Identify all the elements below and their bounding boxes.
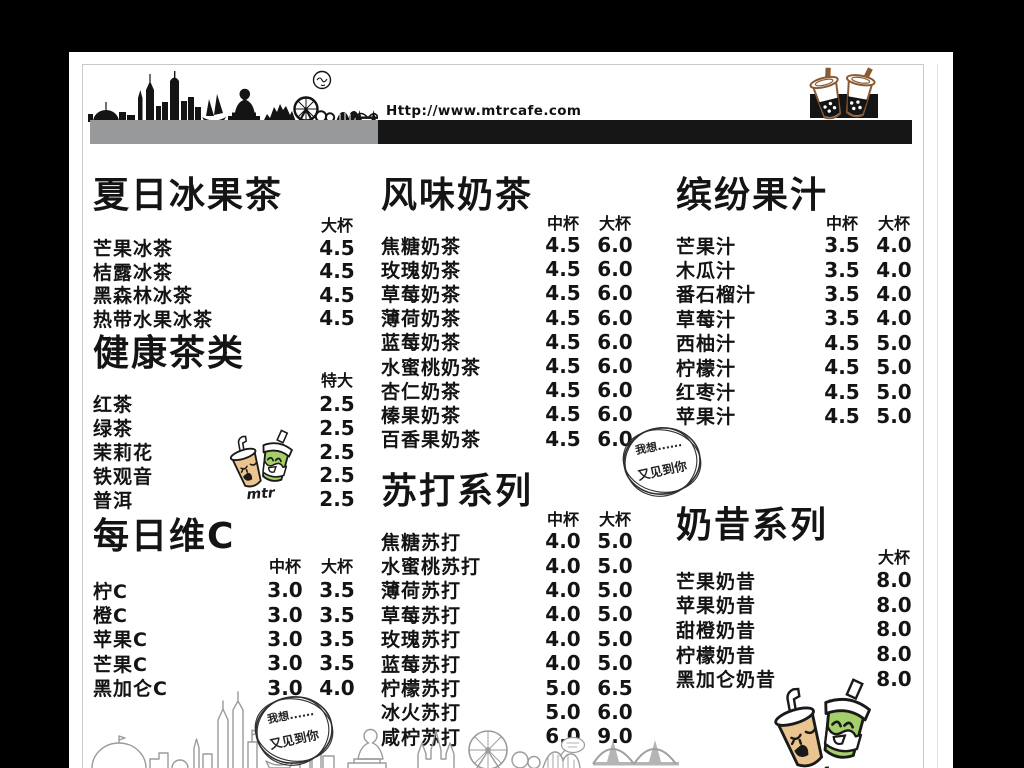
item-price-large: 3.5: [311, 627, 363, 651]
item-name: 红枣汁: [676, 378, 816, 405]
site-url: Http://www.mtrcafe.com: [386, 103, 581, 119]
menu-item-row: 芒果汁 3.5 4.0: [676, 233, 920, 257]
item-name: 番石榴汁: [676, 280, 816, 307]
menu-item-row: 玫瑰奶茶 4.5 6.0: [381, 257, 641, 281]
size-header-extra-large: 特大: [311, 372, 363, 390]
item-price-medium: 3.5: [816, 306, 868, 330]
item-price-medium: 4.0: [537, 651, 589, 675]
size-header-large: 大杯: [589, 511, 641, 529]
section-title-soda-series: 苏打系列: [381, 472, 533, 511]
size-header-row: 中杯 大杯: [93, 558, 363, 576]
item-name: 西柚汁: [676, 329, 816, 356]
item-name: 苹果奶昔: [676, 591, 868, 618]
item-price-large: 5.0: [868, 404, 920, 428]
size-header-medium: 中杯: [259, 558, 311, 576]
item-price-medium: 3.5: [816, 233, 868, 257]
section-title-colorful-juice: 缤纷果汁: [676, 176, 828, 215]
menu-item-row: 芒果奶昔 8.0: [676, 568, 920, 593]
item-price-medium: 3.0: [259, 603, 311, 627]
item-name: 玫瑰奶茶: [381, 256, 537, 283]
size-header-row: 特大: [93, 372, 363, 390]
item-name: 水蜜桃奶茶: [381, 353, 537, 380]
top-skyline-silhouette: [88, 68, 378, 122]
menu-item-row: 焦糖苏打 4.0 5.0: [381, 529, 641, 553]
menu-item-row: 柠檬汁 4.5 5.0: [676, 355, 920, 379]
menu-item-row: 橙C 3.0 3.5: [93, 602, 363, 626]
section-items-vitamin-c: 柠C 3.0 3.5 橙C 3.0 3.5 苹果C 3.0 3.5 芒果C 3.…: [93, 578, 363, 700]
size-header-large: 大杯: [868, 549, 920, 567]
menu-item-row: 木瓜汁 3.5 4.0: [676, 257, 920, 281]
menu-item-row: 蓝莓苏打 4.0 5.0: [381, 651, 641, 675]
item-name: 百香果奶茶: [381, 425, 537, 452]
size-header-row: 中杯 大杯: [381, 511, 641, 529]
scribble-badge-bottom: 我想...... 又见到你: [252, 692, 336, 768]
item-price-medium: 4.5: [537, 402, 589, 426]
item-price-medium: 4.5: [816, 331, 868, 355]
item-price-large: 4.0: [868, 258, 920, 282]
item-price-large: 8.0: [868, 642, 920, 666]
menu-item-row: 杏仁奶茶 4.5 6.0: [381, 378, 641, 402]
item-name: 蓝莓奶茶: [381, 328, 537, 355]
item-price-medium: 4.5: [537, 378, 589, 402]
item-name: 甜橙奶昔: [676, 616, 868, 643]
item-price-medium: 3.0: [259, 578, 311, 602]
menu-item-row: 黑森林冰茶 4.5: [93, 283, 363, 307]
item-name: 草莓汁: [676, 305, 816, 332]
item-name: 焦糖苏打: [381, 528, 537, 555]
item-name: 柠C: [93, 577, 259, 604]
menu-item-row: 柠檬奶昔 8.0: [676, 642, 920, 667]
item-name: 水蜜桃苏打: [381, 552, 537, 579]
item-name: 木瓜汁: [676, 256, 816, 283]
item-price-large: 6.0: [589, 306, 641, 330]
menu-item-row: 榛果奶茶 4.5 6.0: [381, 402, 641, 426]
item-price-large: 3.5: [311, 578, 363, 602]
menu-item-row: 西柚汁 4.5 5.0: [676, 331, 920, 355]
item-price-extra-large: 2.5: [311, 416, 363, 440]
menu-item-row: 草莓奶茶 4.5 6.0: [381, 281, 641, 305]
menu-item-row: 薄荷奶茶 4.5 6.0: [381, 306, 641, 330]
item-price-large: 4.0: [868, 233, 920, 257]
item-name: 热带水果冰茶: [93, 305, 311, 332]
size-header-medium: 中杯: [537, 511, 589, 529]
item-price-large: 8.0: [868, 593, 920, 617]
item-price-large: 3.5: [311, 603, 363, 627]
mascot-cups-small-icon: mtr: [222, 420, 300, 503]
item-price-large: 5.0: [868, 355, 920, 379]
item-price-medium: 4.5: [816, 404, 868, 428]
item-price-medium: 4.5: [537, 354, 589, 378]
item-price-medium: 3.0: [259, 651, 311, 675]
item-name: 蓝莓苏打: [381, 650, 537, 677]
menu-item-row: 芒果C 3.0 3.5: [93, 651, 363, 675]
item-price-large: 5.0: [589, 602, 641, 626]
item-name: 焦糖奶茶: [381, 232, 537, 259]
menu-item-row: 玫瑰苏打 4.0 5.0: [381, 627, 641, 651]
menu-item-row: 水蜜桃苏打 4.0 5.0: [381, 553, 641, 577]
item-price-medium: 4.5: [537, 281, 589, 305]
item-price-large: 5.0: [589, 578, 641, 602]
size-header-large: 大杯: [868, 215, 920, 233]
item-price-medium: 4.5: [816, 380, 868, 404]
item-name: 芒果奶昔: [676, 567, 868, 594]
menu-item-row: 薄荷苏打 4.0 5.0: [381, 578, 641, 602]
size-header-medium: 中杯: [537, 215, 589, 233]
section-title-daily-vitamin-c: 每日维C: [93, 517, 235, 556]
mascot-cups-large-icon: mtc: [762, 664, 882, 768]
item-price-large: 5.0: [868, 331, 920, 355]
item-price-large: 8.0: [868, 617, 920, 641]
size-header-large: 大杯: [589, 215, 641, 233]
item-price-large: 5.0: [589, 554, 641, 578]
item-price-medium: 4.5: [537, 330, 589, 354]
item-price-medium: 4.0: [537, 602, 589, 626]
size-header-row: 中杯 大杯: [381, 215, 641, 233]
size-header-medium: 中杯: [816, 215, 868, 233]
item-name: 草莓苏打: [381, 601, 537, 628]
menu-item-row: 甜橙奶昔 8.0: [676, 617, 920, 642]
size-header-large: 大杯: [311, 558, 363, 576]
item-name: 薄荷苏打: [381, 576, 537, 603]
item-price-large: 6.0: [589, 330, 641, 354]
section-items-summer: 芒果冰茶 4.5 桔露冰茶 4.5 黑森林冰茶 4.5 热带水果冰茶 4.5: [93, 236, 363, 330]
menu-item-row: 热带水果冰茶 4.5: [93, 307, 363, 331]
menu-item-row: 红茶 2.5: [93, 392, 363, 416]
item-price-large: 6.0: [589, 233, 641, 257]
menu-item-row: 草莓苏打 4.0 5.0: [381, 602, 641, 626]
item-price-medium: 4.5: [537, 306, 589, 330]
item-price-large: 4.0: [868, 282, 920, 306]
menu-item-row: 蓝莓奶茶 4.5 6.0: [381, 330, 641, 354]
item-price-large: 3.5: [311, 651, 363, 675]
item-name: 柠檬汁: [676, 354, 816, 381]
menu-item-row: 焦糖奶茶 4.5 6.0: [381, 233, 641, 257]
size-header-large: 大杯: [311, 217, 363, 235]
item-price-medium: 4.5: [537, 257, 589, 281]
item-name: 芒果C: [93, 650, 259, 677]
item-price-large: 4.0: [868, 306, 920, 330]
item-price-medium: 4.5: [537, 427, 589, 451]
item-price-large: 5.0: [589, 529, 641, 553]
menu-item-row: 桔露冰茶 4.5: [93, 260, 363, 284]
item-name: 榛果奶茶: [381, 401, 537, 428]
menu-item-row: 苹果奶昔 8.0: [676, 593, 920, 618]
item-price-large: 4.5: [311, 283, 363, 307]
page-edge-line: [937, 64, 938, 768]
item-price-medium: 3.5: [816, 282, 868, 306]
section-title-flavored-milk-tea: 风味奶茶: [381, 176, 533, 215]
menu-item-row: 红枣汁 4.5 5.0: [676, 379, 920, 403]
section-items-milk-tea: 焦糖奶茶 4.5 6.0 玫瑰奶茶 4.5 6.0 草莓奶茶 4.5 6.0 薄…: [381, 233, 641, 451]
menu-poster: Http://www.mtrcafe.com 夏日冰果茶 大杯 芒果: [0, 0, 1024, 768]
size-header-row: 大杯: [676, 549, 920, 567]
item-price-extra-large: 2.5: [311, 487, 363, 511]
item-price-extra-large: 2.5: [311, 392, 363, 416]
item-price-large: 6.0: [589, 257, 641, 281]
mascot-label: mtr: [246, 485, 276, 503]
menu-item-row: 柠C 3.0 3.5: [93, 578, 363, 602]
item-price-medium: 4.0: [537, 554, 589, 578]
menu-item-row: 草莓汁 3.5 4.0: [676, 306, 920, 330]
item-price-large: 4.5: [311, 259, 363, 283]
menu-item-row: 苹果汁 4.5 5.0: [676, 404, 920, 428]
section-title-summer-ice-fruit-tea: 夏日冰果茶: [93, 176, 283, 215]
item-name: 芒果汁: [676, 232, 816, 259]
item-name: 薄荷奶茶: [381, 304, 537, 331]
item-price-large: 6.0: [589, 354, 641, 378]
item-price-medium: 4.5: [537, 233, 589, 257]
item-price-large: 5.0: [589, 651, 641, 675]
size-header-row: 大杯: [93, 217, 363, 235]
item-name: 杏仁奶茶: [381, 377, 537, 404]
bubble-tea-cups-icon: [786, 64, 886, 124]
scribble-badge-middle: 我想...... 又见到你: [620, 423, 704, 499]
item-price-large: 6.0: [589, 281, 641, 305]
gray-bar: [90, 120, 378, 144]
item-price-medium: 4.0: [537, 627, 589, 651]
item-price-medium: 3.5: [816, 258, 868, 282]
item-price-large: 4.5: [311, 236, 363, 260]
item-name: 玫瑰苏打: [381, 625, 537, 652]
section-title-healthy-tea: 健康茶类: [93, 334, 245, 373]
item-price-large: 8.0: [868, 568, 920, 592]
item-name: 草莓奶茶: [381, 280, 537, 307]
item-price-medium: 4.5: [816, 355, 868, 379]
item-price-extra-large: 2.5: [311, 463, 363, 487]
menu-item-row: 芒果冰茶 4.5: [93, 236, 363, 260]
item-price-large: 4.5: [311, 306, 363, 330]
menu-item-row: 百香果奶茶 4.5 6.0: [381, 427, 641, 451]
menu-item-row: 水蜜桃奶茶 4.5 6.0: [381, 354, 641, 378]
size-header-row: 中杯 大杯: [676, 215, 920, 233]
item-price-large: 6.0: [589, 378, 641, 402]
item-name: 橙C: [93, 601, 259, 628]
item-price-large: 5.0: [589, 627, 641, 651]
menu-item-row: 番石榴汁 3.5 4.0: [676, 282, 920, 306]
item-name: 苹果C: [93, 625, 259, 652]
bottom-skyline-outline: [88, 688, 698, 768]
item-price-extra-large: 2.5: [311, 440, 363, 464]
item-price-large: 5.0: [868, 380, 920, 404]
item-price-medium: 4.0: [537, 529, 589, 553]
item-price-medium: 4.0: [537, 578, 589, 602]
item-price-medium: 3.0: [259, 627, 311, 651]
section-items-juice: 芒果汁 3.5 4.0 木瓜汁 3.5 4.0 番石榴汁 3.5 4.0 草莓汁…: [676, 233, 920, 428]
menu-item-row: 苹果C 3.0 3.5: [93, 627, 363, 651]
section-title-milkshake-series: 奶昔系列: [676, 506, 828, 545]
